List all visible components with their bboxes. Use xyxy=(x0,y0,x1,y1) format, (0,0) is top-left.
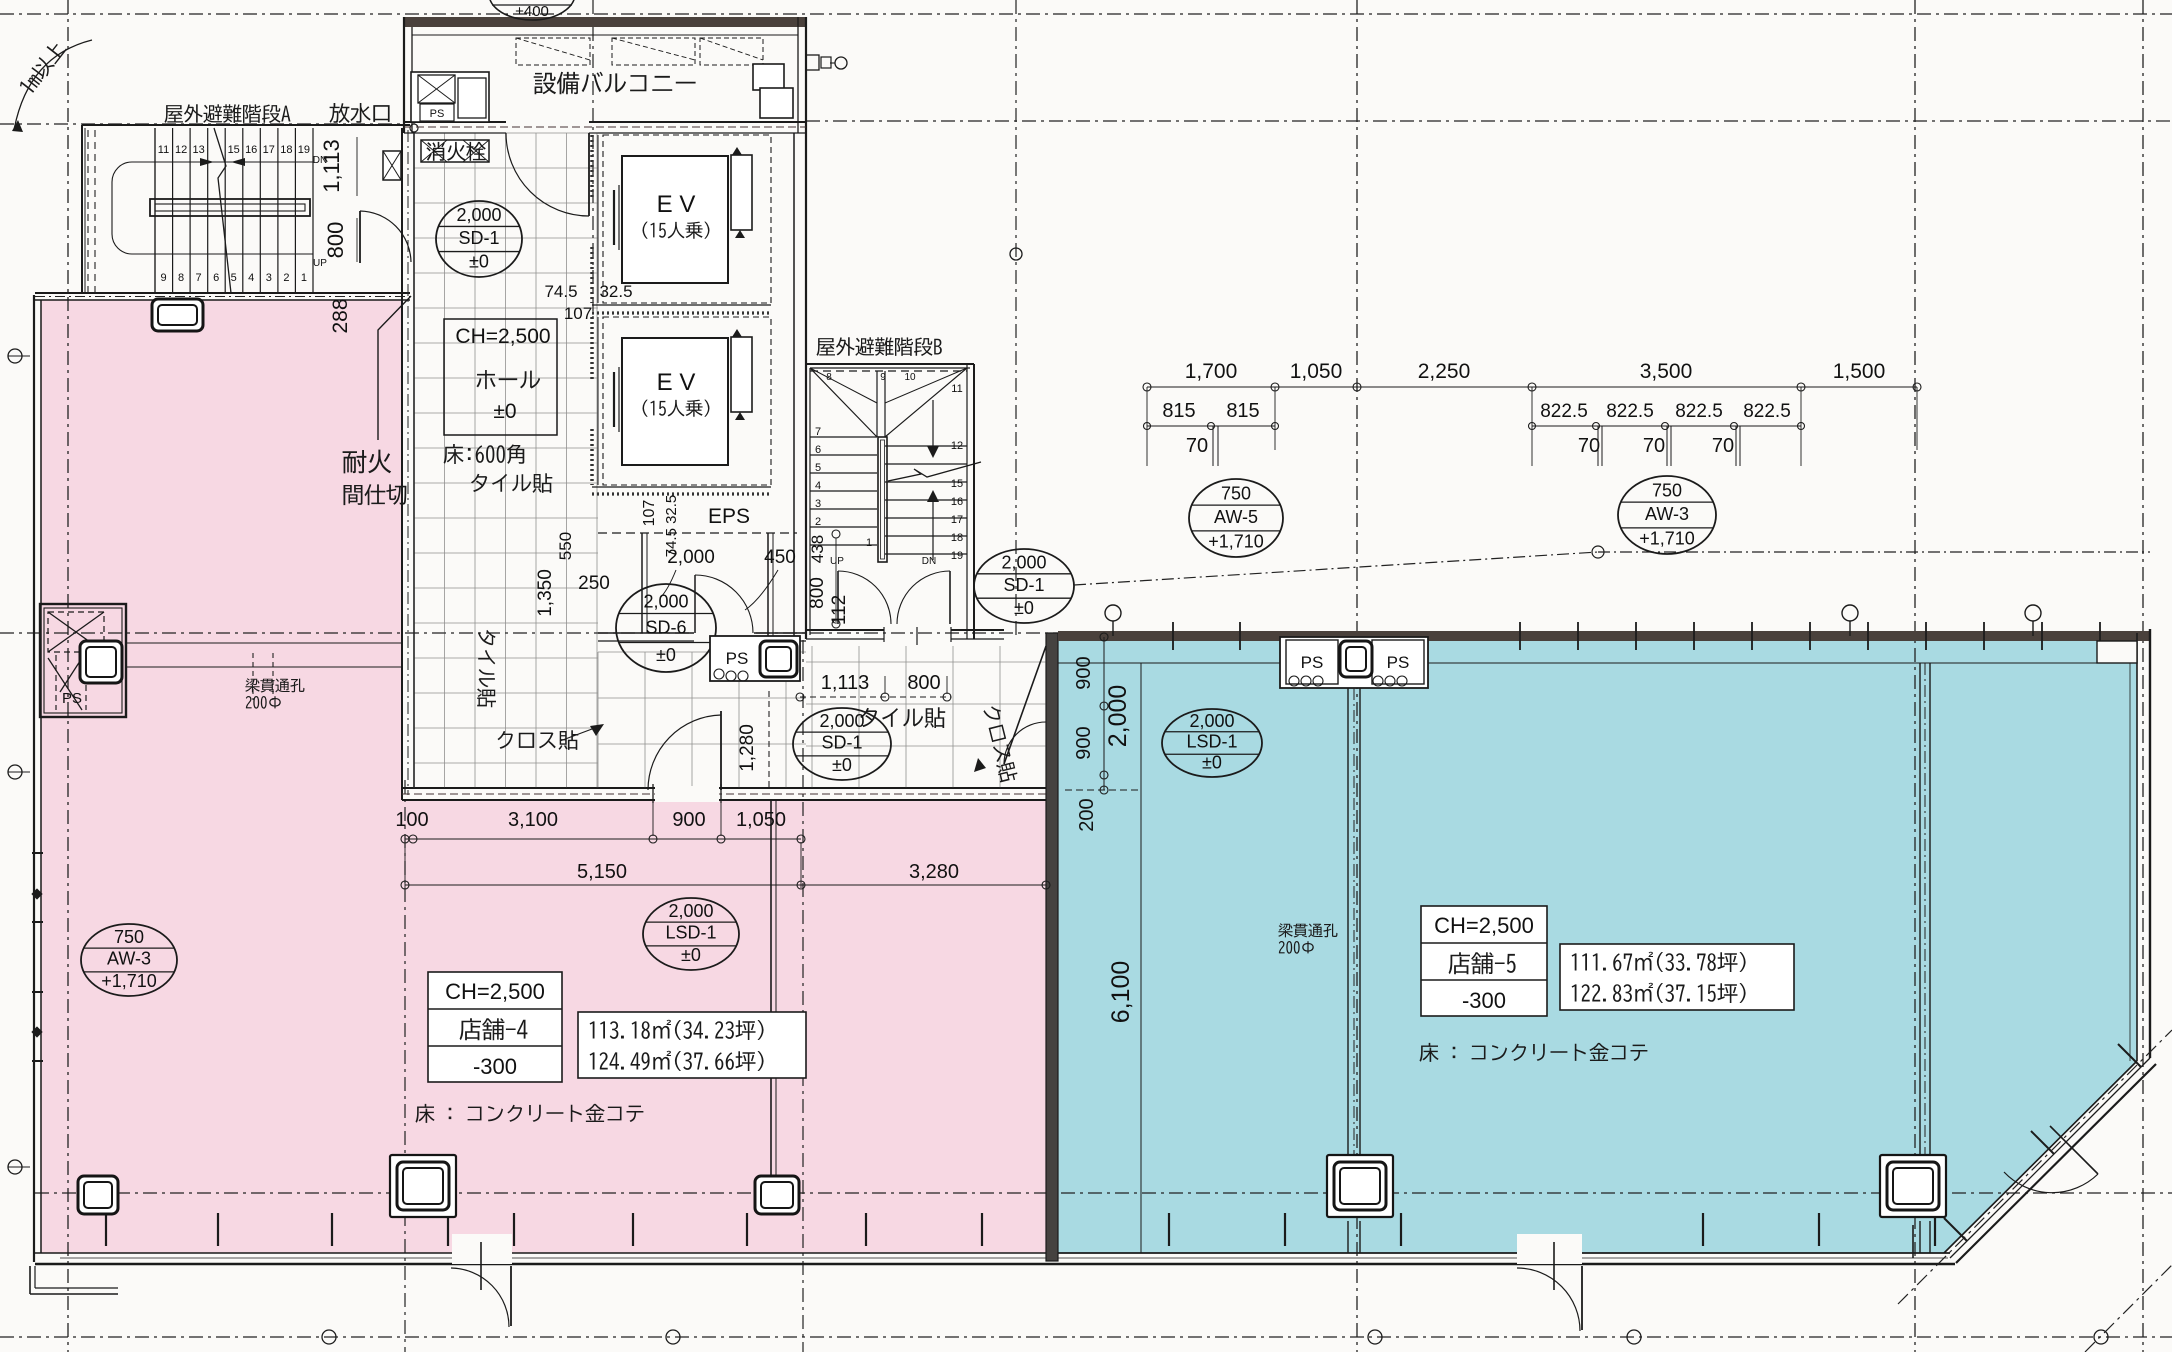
svg-text:-300: -300 xyxy=(1462,988,1506,1013)
svg-text:LSD-1: LSD-1 xyxy=(1186,731,1237,751)
svg-text:19: 19 xyxy=(298,144,310,156)
svg-text:822.5: 822.5 xyxy=(1540,401,1588,422)
svg-text:CH=2,500: CH=2,500 xyxy=(1434,913,1534,938)
svg-text:1,050: 1,050 xyxy=(736,809,786,831)
svg-text:±0: ±0 xyxy=(469,252,489,272)
svg-text:E V: E V xyxy=(657,369,696,396)
svg-text:AW-3: AW-3 xyxy=(1645,504,1689,524)
svg-text:2,000: 2,000 xyxy=(819,711,864,731)
svg-text:16: 16 xyxy=(951,496,963,508)
svg-text:SD-6: SD-6 xyxy=(645,618,686,638)
svg-text:2: 2 xyxy=(283,272,289,284)
svg-text:12: 12 xyxy=(175,144,187,156)
svg-text:100: 100 xyxy=(395,809,428,831)
svg-text:3,100: 3,100 xyxy=(508,809,558,831)
svg-text:2: 2 xyxy=(815,516,821,528)
svg-text:5,150: 5,150 xyxy=(577,861,627,883)
svg-text:CH=2,500: CH=2,500 xyxy=(445,979,545,1004)
svg-text:PS: PS xyxy=(1387,653,1410,672)
svg-text:2,000: 2,000 xyxy=(456,205,501,225)
svg-text:750: 750 xyxy=(1652,481,1682,501)
svg-text:DN: DN xyxy=(922,556,936,567)
svg-text:6,100: 6,100 xyxy=(1107,961,1135,1024)
svg-text:EPS: EPS xyxy=(708,505,750,528)
svg-text:2,000: 2,000 xyxy=(1001,553,1046,573)
svg-text:70: 70 xyxy=(1186,435,1208,457)
svg-text:800: 800 xyxy=(907,672,940,694)
svg-text:438: 438 xyxy=(808,535,827,563)
svg-text:450: 450 xyxy=(764,547,796,568)
svg-text:1,500: 1,500 xyxy=(1833,360,1886,383)
svg-text:1: 1 xyxy=(866,537,872,549)
svg-text:288: 288 xyxy=(329,298,352,333)
svg-text:200: 200 xyxy=(1076,798,1098,831)
svg-text:PS: PS xyxy=(62,690,82,707)
svg-text:CH=2,500: CH=2,500 xyxy=(455,325,550,348)
svg-text:107: 107 xyxy=(564,304,592,323)
svg-text:LSD-1: LSD-1 xyxy=(665,923,716,943)
svg-text:2,000: 2,000 xyxy=(1189,711,1234,731)
svg-text:900: 900 xyxy=(1073,726,1095,759)
svg-text:815: 815 xyxy=(1162,400,1195,422)
svg-text:15: 15 xyxy=(228,144,240,156)
svg-text:900: 900 xyxy=(672,809,705,831)
svg-text:2,000: 2,000 xyxy=(667,547,715,568)
svg-text:13: 13 xyxy=(192,144,204,156)
svg-text:70: 70 xyxy=(1643,435,1665,457)
svg-text:2,000: 2,000 xyxy=(643,591,688,611)
svg-text:11: 11 xyxy=(951,383,962,395)
svg-text:4: 4 xyxy=(815,480,821,492)
svg-text:SD-1: SD-1 xyxy=(458,228,499,248)
svg-text:112: 112 xyxy=(829,595,850,625)
svg-text:1,113: 1,113 xyxy=(319,139,344,192)
svg-text:7: 7 xyxy=(196,272,202,284)
svg-text:+1,710: +1,710 xyxy=(1208,531,1264,551)
svg-text:+1,710: +1,710 xyxy=(1639,528,1695,548)
svg-text:1: 1 xyxy=(301,272,307,284)
svg-text:5: 5 xyxy=(815,462,821,474)
svg-text:900: 900 xyxy=(1073,656,1095,689)
svg-text:±0: ±0 xyxy=(1202,753,1222,773)
svg-text:±0: ±0 xyxy=(656,645,676,665)
svg-text:9: 9 xyxy=(160,272,166,284)
svg-text:1,700: 1,700 xyxy=(1185,360,1238,383)
svg-text:PS: PS xyxy=(1301,653,1324,672)
svg-text:PS: PS xyxy=(430,108,445,120)
svg-text:750: 750 xyxy=(1221,484,1251,504)
svg-text:70: 70 xyxy=(1712,435,1734,457)
svg-text:19: 19 xyxy=(951,550,963,562)
svg-text:822.5: 822.5 xyxy=(1606,401,1654,422)
svg-text:±0: ±0 xyxy=(681,945,701,965)
svg-text:822.5: 822.5 xyxy=(1743,401,1791,422)
svg-text:1,350: 1,350 xyxy=(535,569,556,617)
svg-text:822.5: 822.5 xyxy=(1675,401,1723,422)
svg-text:12: 12 xyxy=(951,440,963,452)
svg-text:800: 800 xyxy=(323,222,348,259)
svg-text:16: 16 xyxy=(245,144,257,156)
svg-text:18: 18 xyxy=(951,532,963,544)
svg-text:3,280: 3,280 xyxy=(909,861,959,883)
svg-text:17: 17 xyxy=(263,144,275,156)
svg-text:3: 3 xyxy=(266,272,272,284)
svg-text:750: 750 xyxy=(114,927,144,947)
svg-text:+1,710: +1,710 xyxy=(101,971,157,991)
svg-text:6: 6 xyxy=(213,272,219,284)
svg-text:2,000: 2,000 xyxy=(1104,685,1132,748)
svg-text:74.5: 74.5 xyxy=(544,282,577,301)
svg-text:E V: E V xyxy=(657,191,696,218)
svg-text:4: 4 xyxy=(248,272,254,284)
svg-text:SD-1: SD-1 xyxy=(821,733,862,753)
svg-text:815: 815 xyxy=(1226,400,1259,422)
svg-text:±0: ±0 xyxy=(493,400,516,423)
svg-text:550: 550 xyxy=(556,532,575,560)
svg-text:1,280: 1,280 xyxy=(737,724,758,772)
svg-text:+400: +400 xyxy=(515,3,549,20)
svg-text:AW-3: AW-3 xyxy=(107,949,151,969)
svg-text:10: 10 xyxy=(904,372,916,383)
svg-text:107: 107 xyxy=(641,500,658,527)
svg-text:800: 800 xyxy=(807,577,828,609)
svg-text:UP: UP xyxy=(313,258,327,269)
svg-text:SD-1: SD-1 xyxy=(1003,575,1044,595)
svg-text:-300: -300 xyxy=(473,1054,517,1079)
svg-text:70: 70 xyxy=(1578,435,1600,457)
svg-text:9: 9 xyxy=(880,372,886,383)
svg-text:UP: UP xyxy=(830,556,844,567)
svg-text:±0: ±0 xyxy=(1014,598,1034,618)
svg-text:3,500: 3,500 xyxy=(1640,360,1693,383)
svg-text:5: 5 xyxy=(231,272,237,284)
svg-text:11: 11 xyxy=(158,144,169,156)
svg-text:2,250: 2,250 xyxy=(1418,360,1471,383)
svg-text:250: 250 xyxy=(578,573,610,594)
svg-text:±0: ±0 xyxy=(832,755,852,775)
svg-text:18: 18 xyxy=(280,144,292,156)
svg-text:15: 15 xyxy=(951,478,963,490)
svg-text:PS: PS xyxy=(726,649,749,668)
svg-text:1,113: 1,113 xyxy=(821,672,870,694)
svg-text:8: 8 xyxy=(178,272,184,284)
svg-text:8: 8 xyxy=(826,372,832,383)
svg-text:6: 6 xyxy=(815,444,821,456)
svg-text:2,000: 2,000 xyxy=(668,901,713,921)
svg-text:32.5: 32.5 xyxy=(599,282,632,301)
svg-text:AW-5: AW-5 xyxy=(1214,507,1258,527)
svg-text:7: 7 xyxy=(815,426,821,438)
svg-text:1,050: 1,050 xyxy=(1290,360,1343,383)
svg-text:17: 17 xyxy=(951,514,963,526)
svg-text:3: 3 xyxy=(815,498,821,510)
